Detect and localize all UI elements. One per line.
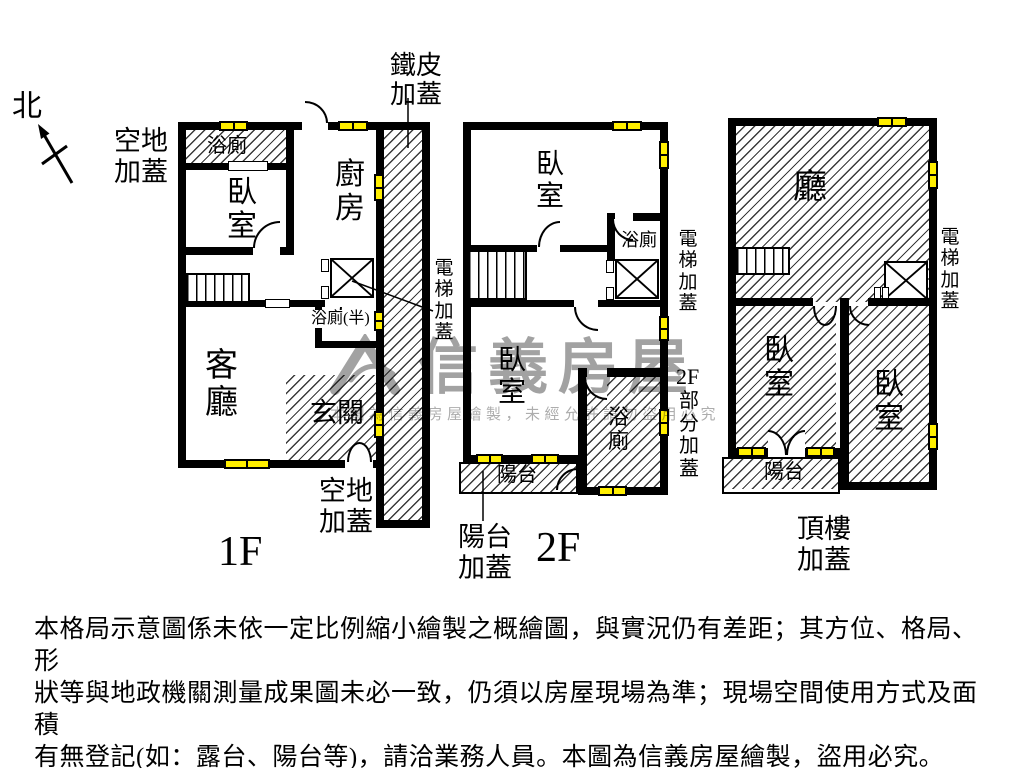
roof-cover-label: 頂樓加蓋 (795, 514, 853, 575)
wall (463, 300, 574, 307)
window (338, 121, 368, 131)
window (928, 423, 938, 450)
disclaimer-line: 有無登記(如：露台、陽台等)，請洽業務人員。本圖為信義房屋繪製，盜用必究。 (34, 742, 992, 768)
room-bedroom1-2f-label: 臥室 (534, 149, 566, 212)
open-land-bottom-label: 空地加蓋 (317, 476, 375, 537)
open-land-top-label: 空地加蓋 (112, 126, 170, 187)
elevator-door-jamb (606, 287, 614, 300)
window (219, 121, 248, 131)
elevator-cover-roof-label: 電梯加蓋 (939, 227, 961, 313)
room-bedroom-1f-label: 臥室 (225, 176, 259, 244)
elevator-door-jamb (606, 260, 614, 273)
room-balcony-roof-label: 陽台 (764, 461, 804, 484)
elevator-2f (615, 259, 659, 299)
stairs-1f (185, 273, 250, 303)
room-balcony-2f-label: 陽台 (497, 464, 537, 487)
elevator-door-jamb (321, 259, 329, 272)
wall (660, 122, 668, 495)
window (374, 311, 384, 331)
wall (728, 298, 813, 306)
elevator-1f (330, 258, 374, 298)
wall (598, 300, 668, 307)
window (374, 174, 384, 201)
elevator-door-jamb (321, 286, 329, 299)
floorplan-page: 北 空地加蓋 鐵皮加蓋 浴廁 臥室 廚房 電梯加蓋 浴廁(半) 客廳 玄關 空地… (0, 0, 1024, 768)
compass-north-label: 北 (12, 90, 42, 125)
north-arrow-icon (38, 124, 72, 183)
door-arc-hall-2f (574, 307, 598, 331)
window (224, 459, 270, 469)
elevator-door-jamb (874, 287, 881, 299)
metal-cover-label: 鐵皮加蓋 (388, 51, 444, 110)
elevator-door-jamb (882, 287, 889, 299)
sinyi-logo-icon (327, 334, 401, 396)
disclaimer-line: 本格局示意圖係未依一定比例縮小繪製之概繪圖，與實況仍有差距；其方位、格局、形 (34, 614, 992, 678)
wall (840, 298, 849, 490)
room-bedroom-right-roof-label: 臥室 (872, 368, 906, 436)
window (598, 486, 627, 496)
watermark-brand: 信義房屋 (418, 334, 698, 403)
room-bath-1f-label: 浴廁 (207, 135, 247, 158)
wall (178, 247, 253, 255)
wall (840, 482, 937, 490)
room-bedroom-left-roof-label: 臥室 (762, 334, 796, 402)
window (476, 454, 503, 464)
floor2-label: 2F (536, 524, 580, 572)
watermark-small-text: 本圖為信義房屋繪製，未經允許請勿盜用必究 (330, 407, 720, 424)
room-bath1-2f-label: 浴廁 (621, 230, 657, 251)
wall (280, 247, 294, 255)
balcony-cover-label: 陽台加蓋 (456, 522, 514, 583)
window (928, 161, 938, 189)
room-hall-roof-label: 廳 (793, 168, 827, 207)
partial-cover-label: 部分加蓋 (677, 390, 701, 480)
disclaimer-text: 本格局示意圖係未依一定比例縮小繪製之概繪圖，與實況仍有差距；其方位、格局、形 狀… (34, 614, 992, 768)
wall (560, 245, 607, 252)
elevator-cover-1f-label: 電梯加蓋 (433, 258, 455, 344)
hatch-iron-roof-strip (384, 130, 422, 520)
disclaimer-line: 狀等與地政機關測量成果圖未必一致，仍須以房屋現場為準；現場空間使用方式及面積 (34, 678, 992, 742)
door-arc-kitchen-1f (305, 101, 328, 123)
floor1-label: 1F (218, 528, 262, 576)
wall (422, 122, 430, 528)
elevator-cover-2f-label: 電梯加蓋 (677, 229, 699, 315)
window (659, 141, 669, 169)
elevator-roof (884, 261, 928, 300)
window (877, 117, 907, 127)
window (612, 121, 642, 131)
stairs-2f (467, 250, 527, 300)
room-kitchen-label: 廚房 (333, 158, 367, 226)
room-living-label: 客廳 (203, 348, 240, 423)
wall (728, 118, 736, 457)
wall (376, 520, 430, 528)
window (806, 447, 835, 457)
stairs-roof (735, 247, 790, 275)
sliding-door-symbol (265, 299, 290, 308)
window (737, 447, 766, 457)
door-arc-bedroom1-2f (538, 221, 560, 247)
window-symbol (228, 161, 268, 171)
room-halfbath-label: 浴廁(半) (311, 310, 370, 328)
window (531, 454, 559, 464)
wall (286, 122, 294, 255)
wall (633, 213, 662, 221)
